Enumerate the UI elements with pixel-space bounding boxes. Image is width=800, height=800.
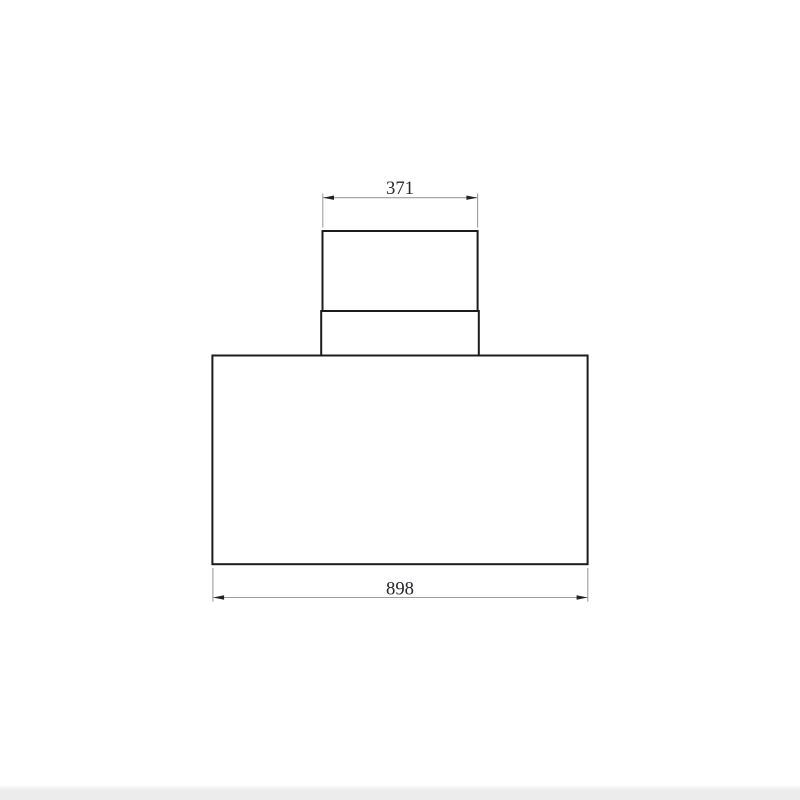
svg-text:371: 371 xyxy=(386,179,414,199)
svg-text:898: 898 xyxy=(386,580,414,600)
